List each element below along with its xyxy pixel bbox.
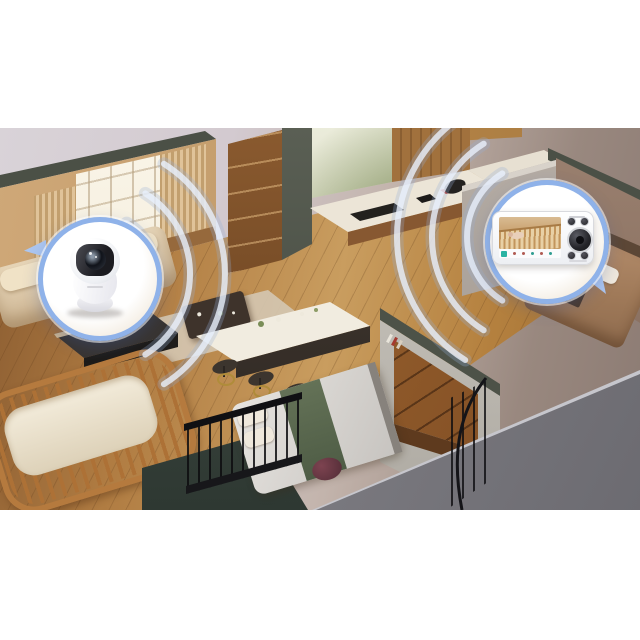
monitor-button bbox=[567, 217, 576, 226]
monitor-button bbox=[580, 251, 589, 260]
baby-monitor bbox=[492, 211, 594, 265]
camera-brand-mark bbox=[87, 286, 103, 288]
monitor-icon bbox=[531, 252, 534, 255]
monitor-screen bbox=[499, 217, 561, 249]
isometric-home-photo bbox=[0, 128, 640, 510]
bar-stool bbox=[212, 360, 238, 373]
monitor-icon-bar bbox=[499, 249, 561, 258]
table-item bbox=[197, 312, 202, 317]
monitor-icon bbox=[513, 252, 516, 255]
active-menu-icon bbox=[501, 251, 507, 257]
monitor-badge bbox=[485, 180, 609, 304]
island-plant bbox=[258, 321, 264, 327]
monitor-button bbox=[567, 251, 576, 260]
screen-baby-head bbox=[508, 232, 513, 237]
table-item bbox=[232, 311, 236, 315]
lens-glint bbox=[95, 256, 97, 258]
monitor-dial bbox=[567, 227, 593, 253]
monitor-icon bbox=[522, 252, 525, 255]
monitor-icon bbox=[540, 252, 543, 255]
bar-stool bbox=[248, 372, 274, 385]
camera-lens-icon bbox=[85, 249, 106, 270]
island-bowl bbox=[300, 312, 304, 316]
plant bbox=[217, 310, 223, 316]
island-plant bbox=[314, 308, 318, 312]
monitor-dial-core bbox=[576, 236, 584, 244]
marketing-image bbox=[0, 0, 640, 640]
monitor-label-row bbox=[569, 260, 587, 262]
lens-glint bbox=[89, 252, 92, 255]
monitor-button bbox=[580, 217, 589, 226]
island-bowl bbox=[276, 317, 281, 322]
monitor-icon bbox=[549, 252, 552, 255]
stool-footring bbox=[217, 373, 235, 386]
camera-badge bbox=[38, 217, 162, 341]
